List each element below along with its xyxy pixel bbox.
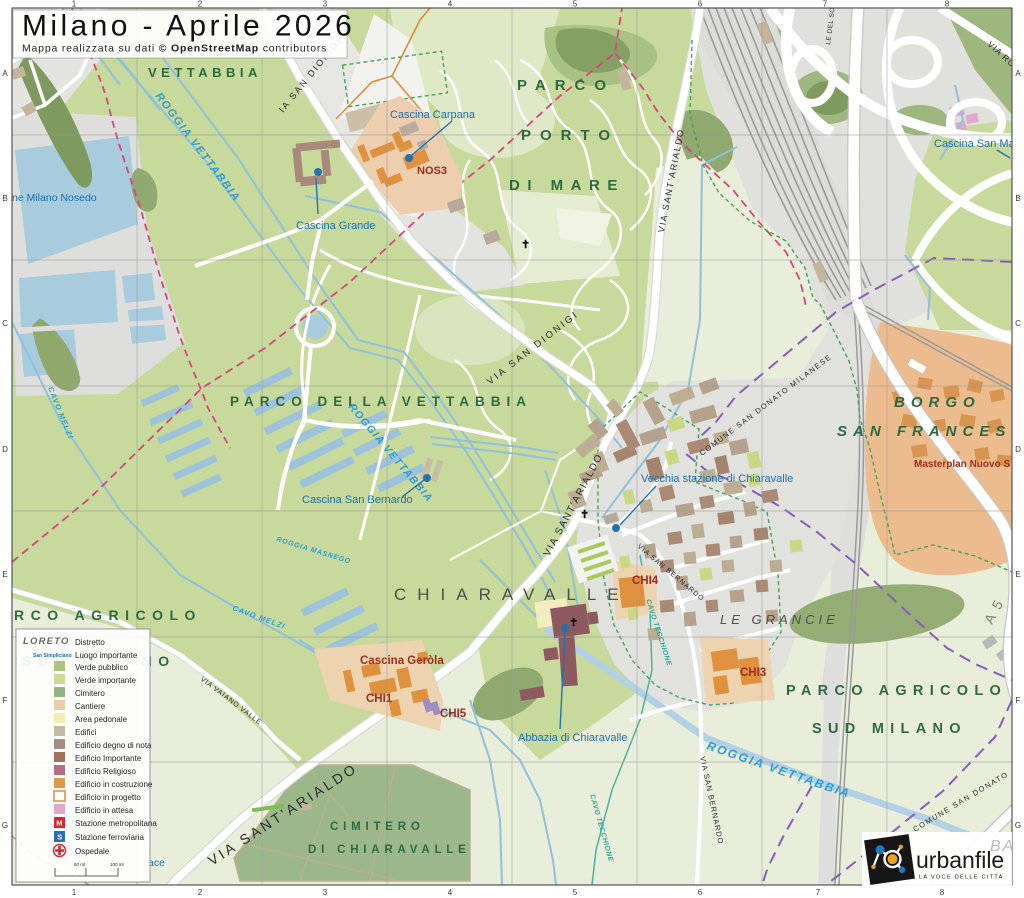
svg-text:ace: ace [148, 857, 165, 869]
svg-text:Stazione ferroviaria: Stazione ferroviaria [75, 833, 144, 842]
svg-text:Mappa realizzata su dati © Ope: Mappa realizzata su dati © OpenStreetMap… [22, 43, 327, 55]
svg-text:Verde importante: Verde importante [75, 676, 136, 685]
svg-text:Verde pubblico: Verde pubblico [75, 663, 128, 672]
svg-text:DI MARE: DI MARE [509, 177, 625, 194]
svg-text:A: A [1015, 69, 1021, 78]
svg-text:PORTO: PORTO [521, 127, 619, 144]
svg-text:PARCO: PARCO [517, 77, 615, 94]
svg-text:M: M [56, 819, 62, 828]
svg-text:Abbazia di Chiaravalle: Abbazia di Chiaravalle [518, 732, 627, 744]
svg-text:Cantiere: Cantiere [75, 702, 106, 711]
svg-text:Edificio Importante: Edificio Importante [75, 754, 142, 763]
svg-text:VETTABBIA: VETTABBIA [148, 65, 262, 80]
svg-text:Edificio degno di nota: Edificio degno di nota [75, 741, 152, 750]
svg-text:Edificio Religioso: Edificio Religioso [75, 767, 136, 776]
svg-text:Vecchia stazione di Chiaravall: Vecchia stazione di Chiaravalle [641, 473, 793, 485]
svg-text:Milano - Aprile 2026: Milano - Aprile 2026 [22, 10, 355, 43]
svg-text:SUD MILANO: SUD MILANO [812, 721, 967, 737]
svg-text:5: 5 [573, 0, 578, 9]
svg-text:G: G [2, 821, 8, 830]
svg-text:SAN FRANCESCO: SAN FRANCESCO [837, 423, 1024, 440]
svg-text:C: C [1015, 319, 1021, 328]
svg-text:Cascina Grande: Cascina Grande [296, 220, 376, 232]
svg-text:DI CHIARAVALLE: DI CHIARAVALLE [308, 844, 471, 856]
svg-text:CHI1: CHI1 [366, 693, 393, 705]
svg-text:Edificio in progetto: Edificio in progetto [75, 793, 141, 802]
svg-text:2: 2 [198, 888, 203, 897]
svg-text:8: 8 [940, 888, 945, 897]
svg-text:CIMITERO: CIMITERO [330, 821, 425, 833]
svg-text:Cascina Geròla: Cascina Geròla [360, 655, 444, 667]
svg-text:✝: ✝ [569, 617, 578, 629]
svg-text:B: B [2, 194, 7, 203]
svg-text:urbanfile: urbanfile [916, 847, 1004, 873]
svg-text:PARCO AGRICOLO: PARCO AGRICOLO [786, 683, 1007, 699]
svg-text:Cimitero: Cimitero [75, 689, 105, 698]
svg-text:Cascina San Bernardo: Cascina San Bernardo [302, 494, 413, 506]
svg-text:Luogo importante: Luogo importante [75, 651, 138, 660]
svg-text:RCO AGRICOLO: RCO AGRICOLO [14, 607, 202, 623]
svg-text:5: 5 [573, 888, 578, 897]
svg-text:3: 3 [323, 888, 328, 897]
svg-text:1: 1 [72, 888, 77, 897]
svg-text:✝: ✝ [521, 239, 530, 251]
svg-text:1: 1 [72, 0, 77, 9]
svg-text:G: G [1015, 821, 1021, 830]
svg-text:3: 3 [323, 0, 328, 9]
svg-text:F: F [3, 696, 8, 705]
svg-text:LA VOCE DELLE CITTA: LA VOCE DELLE CITTA [919, 875, 1004, 881]
svg-text:6: 6 [698, 0, 703, 9]
svg-text:50 mt: 50 mt [74, 862, 86, 867]
svg-text:F: F [1016, 696, 1021, 705]
svg-text:Masterplan Nuovo S: Masterplan Nuovo S [914, 459, 1010, 470]
svg-text:CHIARAVALLE: CHIARAVALLE [394, 585, 630, 604]
svg-text:✝: ✝ [580, 509, 589, 521]
svg-text:Ospedale: Ospedale [75, 847, 110, 856]
svg-text:E: E [1015, 570, 1020, 579]
svg-text:100 mt: 100 mt [110, 862, 125, 867]
svg-text:D: D [1015, 445, 1021, 454]
svg-text:Edificio in attesa: Edificio in attesa [75, 806, 134, 815]
svg-text:San Simpliciano: San Simpliciano [33, 653, 72, 659]
svg-text:7: 7 [823, 0, 828, 9]
svg-text:6: 6 [698, 888, 703, 897]
svg-text:E: E [2, 570, 7, 579]
svg-text:CHI5: CHI5 [440, 708, 467, 720]
svg-text:4: 4 [448, 888, 453, 897]
svg-text:LE GRANCIE: LE GRANCIE [720, 612, 839, 627]
svg-text:CHI4: CHI4 [632, 575, 659, 587]
svg-text:Edificio in costruzione: Edificio in costruzione [75, 780, 153, 789]
svg-text:A: A [2, 69, 8, 78]
svg-text:8: 8 [945, 0, 950, 9]
svg-text:PARCO DELLA VETTABBIA: PARCO DELLA VETTABBIA [230, 394, 532, 409]
svg-text:2: 2 [198, 0, 203, 9]
svg-text:ne Milano Nosedo: ne Milano Nosedo [12, 192, 97, 204]
svg-text:Distretto: Distretto [75, 638, 105, 647]
svg-text:CHI3: CHI3 [740, 667, 766, 679]
svg-text:S: S [57, 833, 62, 842]
svg-text:Cascina San Mar: Cascina San Mar [934, 138, 1019, 150]
svg-text:D: D [2, 445, 8, 454]
svg-text:7: 7 [816, 888, 821, 897]
svg-text:NOS3: NOS3 [417, 165, 447, 177]
svg-text:LORETO: LORETO [23, 636, 70, 647]
svg-text:Stazione metropolitana: Stazione metropolitana [75, 819, 157, 828]
svg-text:BORGO: BORGO [894, 394, 981, 411]
svg-text:Area pedonale: Area pedonale [75, 715, 128, 724]
svg-text:Cascina Carpana: Cascina Carpana [390, 109, 476, 121]
svg-text:4: 4 [448, 0, 453, 9]
svg-text:B: B [1015, 194, 1020, 203]
svg-text:C: C [2, 319, 8, 328]
svg-text:Edifici: Edifici [75, 728, 97, 737]
